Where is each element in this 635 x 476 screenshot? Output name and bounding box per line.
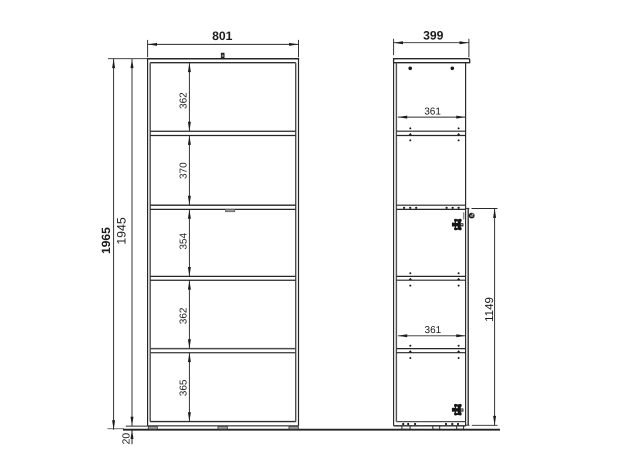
svg-text:1945: 1945 xyxy=(114,217,128,245)
svg-text:399: 399 xyxy=(423,29,444,43)
svg-text:20: 20 xyxy=(122,433,133,445)
svg-text:365: 365 xyxy=(179,379,190,396)
svg-text:1965: 1965 xyxy=(99,227,113,254)
svg-text:370: 370 xyxy=(179,162,190,179)
svg-text:354: 354 xyxy=(179,233,190,250)
svg-text:362: 362 xyxy=(179,307,190,324)
svg-text:361: 361 xyxy=(425,325,442,336)
svg-text:361: 361 xyxy=(424,107,441,118)
svg-text:801: 801 xyxy=(212,29,233,43)
svg-text:362: 362 xyxy=(179,92,190,109)
svg-text:1149: 1149 xyxy=(484,297,496,322)
